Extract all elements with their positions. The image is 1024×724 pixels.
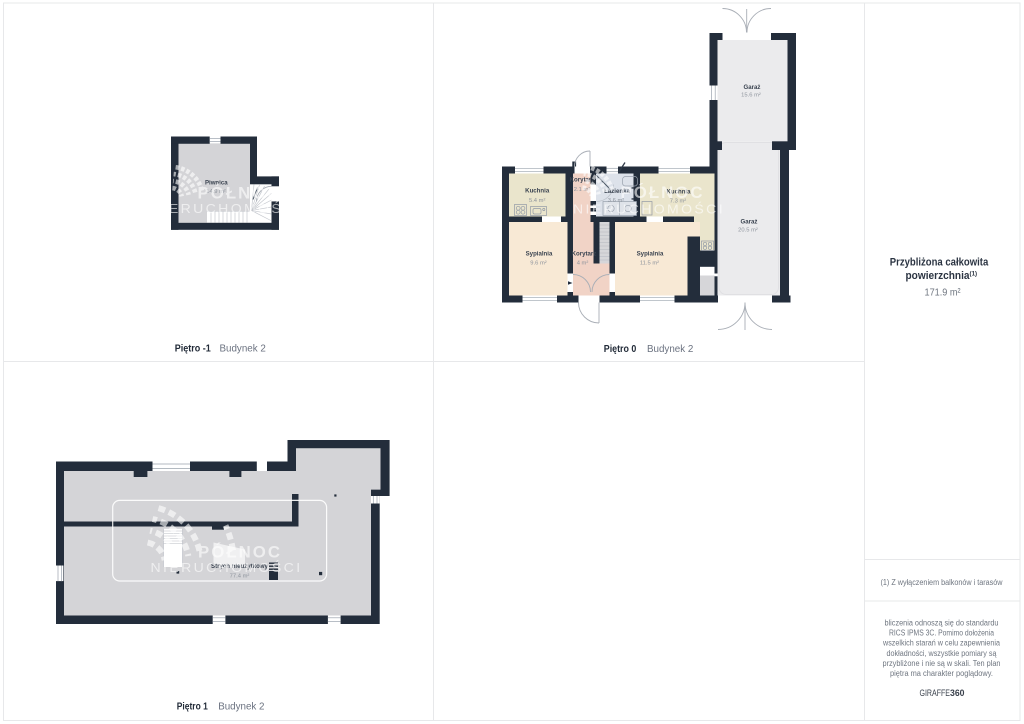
svg-text:5.4 m²: 5.4 m² xyxy=(529,198,545,204)
svg-text:9.6 m²: 9.6 m² xyxy=(530,260,546,266)
svg-text:Sypialnia: Sypialnia xyxy=(637,250,664,257)
svg-text:dokładności, wszystkie pomiary: dokładności, wszystkie pomiary są xyxy=(887,649,998,658)
svg-text:11.5 m²: 11.5 m² xyxy=(640,260,659,266)
svg-text:Garaż: Garaż xyxy=(741,219,758,226)
svg-text:NIERUCHOMOŚCI: NIERUCHOMOŚCI xyxy=(150,201,302,216)
svg-text:20.5 m²: 20.5 m² xyxy=(738,228,758,234)
svg-text:bliczenia odnoszą się do stand: bliczenia odnoszą się do standardu xyxy=(885,618,999,627)
svg-text:PÓŁNOC: PÓŁNOC xyxy=(198,184,282,203)
svg-text:Kuchnia: Kuchnia xyxy=(525,188,550,195)
svg-text:4 m²: 4 m² xyxy=(577,260,589,266)
svg-text:Budynek 2: Budynek 2 xyxy=(218,702,264,713)
svg-text:RICS IPMS 3C. Pomimo dołożenia: RICS IPMS 3C. Pomimo dołożenia xyxy=(889,629,995,638)
svg-text:piętra ma charakter poglądowy.: piętra ma charakter poglądowy. xyxy=(890,669,993,678)
svg-text:Piętro 0: Piętro 0 xyxy=(604,344,637,355)
svg-text:PÓŁNOC: PÓŁNOC xyxy=(621,183,705,202)
svg-text:Budynek 2: Budynek 2 xyxy=(647,344,693,355)
svg-text:powierzchnia(1): powierzchnia(1) xyxy=(906,270,978,282)
svg-text:Garaż: Garaż xyxy=(744,84,761,91)
svg-text:PÓŁNOC: PÓŁNOC xyxy=(198,543,282,562)
svg-text:(1) Z wyłączeniem balkonów i t: (1) Z wyłączeniem balkonów i tarasów xyxy=(881,578,1003,587)
svg-text:Piętro -1: Piętro -1 xyxy=(175,344,212,355)
svg-text:wszelkich starań w celu zapewn: wszelkich starań w celu zapewnienia xyxy=(882,639,1001,648)
svg-text:Korytarz: Korytarz xyxy=(572,250,597,257)
svg-text:NIERUCHOMOŚCI: NIERUCHOMOŚCI xyxy=(151,560,303,575)
svg-text:Przybliżona całkowita: Przybliżona całkowita xyxy=(890,257,989,269)
svg-text:Piętro 1: Piętro 1 xyxy=(177,702,208,713)
svg-text:przybliżone i nie są w skali.: przybliżone i nie są w skali. Ten plan xyxy=(883,659,1001,668)
svg-text:Korytarz: Korytarz xyxy=(570,177,595,184)
svg-text:NIERUCHOMOŚCI: NIERUCHOMOŚCI xyxy=(573,202,725,217)
svg-text:Sypialnia: Sypialnia xyxy=(526,250,553,257)
svg-text:GIRAFFE360: GIRAFFE360 xyxy=(920,688,965,698)
svg-text:171.9 m²: 171.9 m² xyxy=(925,288,961,299)
svg-text:15.6 m²: 15.6 m² xyxy=(741,93,761,99)
svg-text:Budynek 2: Budynek 2 xyxy=(220,344,266,355)
